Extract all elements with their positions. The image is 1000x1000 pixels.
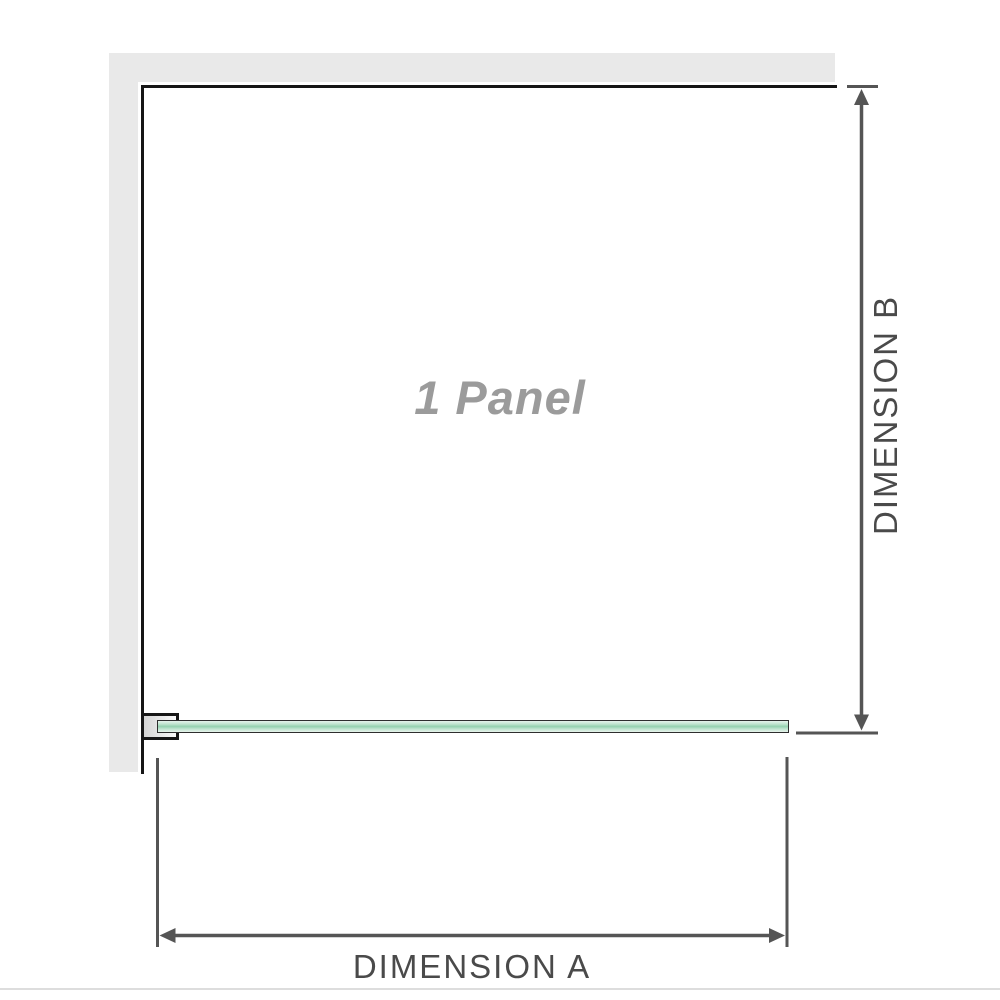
- arrowhead-left-icon: [160, 928, 176, 943]
- glass-panel: [157, 720, 789, 733]
- wall-top-strip: [109, 53, 835, 82]
- wall-inner-edge-line: [141, 85, 837, 774]
- arrowhead-right-icon: [769, 928, 785, 943]
- wall-left-strip: [109, 53, 138, 772]
- diagram-canvas: 1 Panel DIMENSION A DIMENSION B: [0, 0, 1000, 1000]
- arrowhead-up-icon: [854, 89, 869, 105]
- dimension-a-label: DIMENSION A: [152, 948, 792, 986]
- footer-divider-line: [0, 988, 1000, 990]
- dimension-b-label: DIMENSION B: [866, 295, 906, 535]
- panel-count-label: 1 Panel: [300, 370, 700, 426]
- dimension-a-arrow: [158, 757, 788, 947]
- arrowhead-down-icon: [854, 715, 869, 731]
